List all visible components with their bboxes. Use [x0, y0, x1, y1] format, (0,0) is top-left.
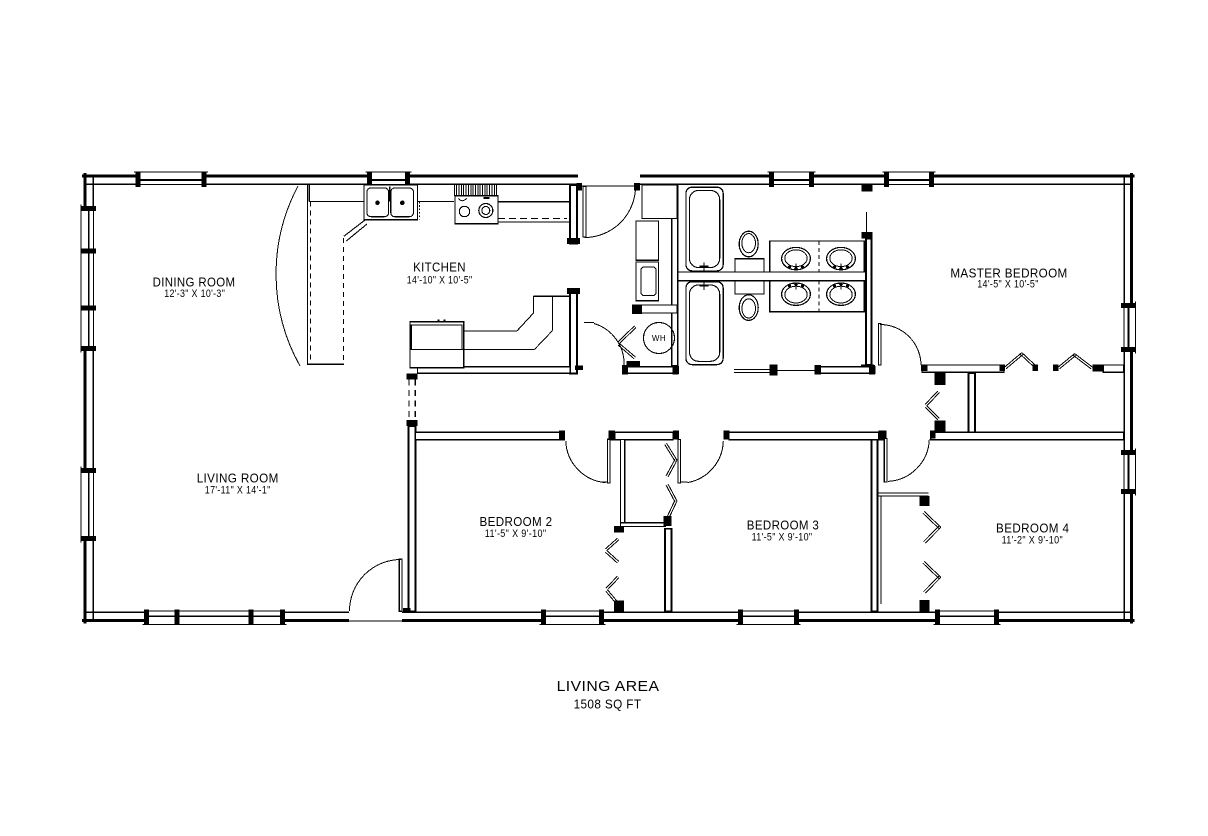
- svg-text:KITCHEN: KITCHEN: [413, 260, 466, 275]
- svg-text:LIVING AREA: LIVING AREA: [557, 679, 660, 695]
- svg-text:1508 SQ FT: 1508 SQ FT: [574, 697, 642, 712]
- svg-text:11'-2" X 9'-10": 11'-2" X 9'-10": [1002, 535, 1063, 547]
- svg-text:WH: WH: [652, 334, 666, 343]
- svg-text:17'-11" X 14'-1": 17'-11" X 14'-1": [205, 485, 271, 497]
- svg-text:11'-5" X 9'-10": 11'-5" X 9'-10": [485, 528, 547, 540]
- svg-text:BEDROOM 2: BEDROOM 2: [480, 514, 553, 529]
- svg-text:11'-5" X 9'-10": 11'-5" X 9'-10": [752, 532, 813, 544]
- svg-text:14'-5" X 10'-5": 14'-5" X 10'-5": [977, 279, 1039, 291]
- svg-text:12'-3" X 10'-3": 12'-3" X 10'-3": [164, 288, 225, 300]
- svg-text:LIVING ROOM: LIVING ROOM: [197, 471, 279, 486]
- svg-text:14'-10" X 10'-5": 14'-10" X 10'-5": [407, 275, 473, 287]
- svg-text:BEDROOM 3: BEDROOM 3: [747, 518, 819, 533]
- svg-text:BEDROOM 4: BEDROOM 4: [996, 521, 1069, 536]
